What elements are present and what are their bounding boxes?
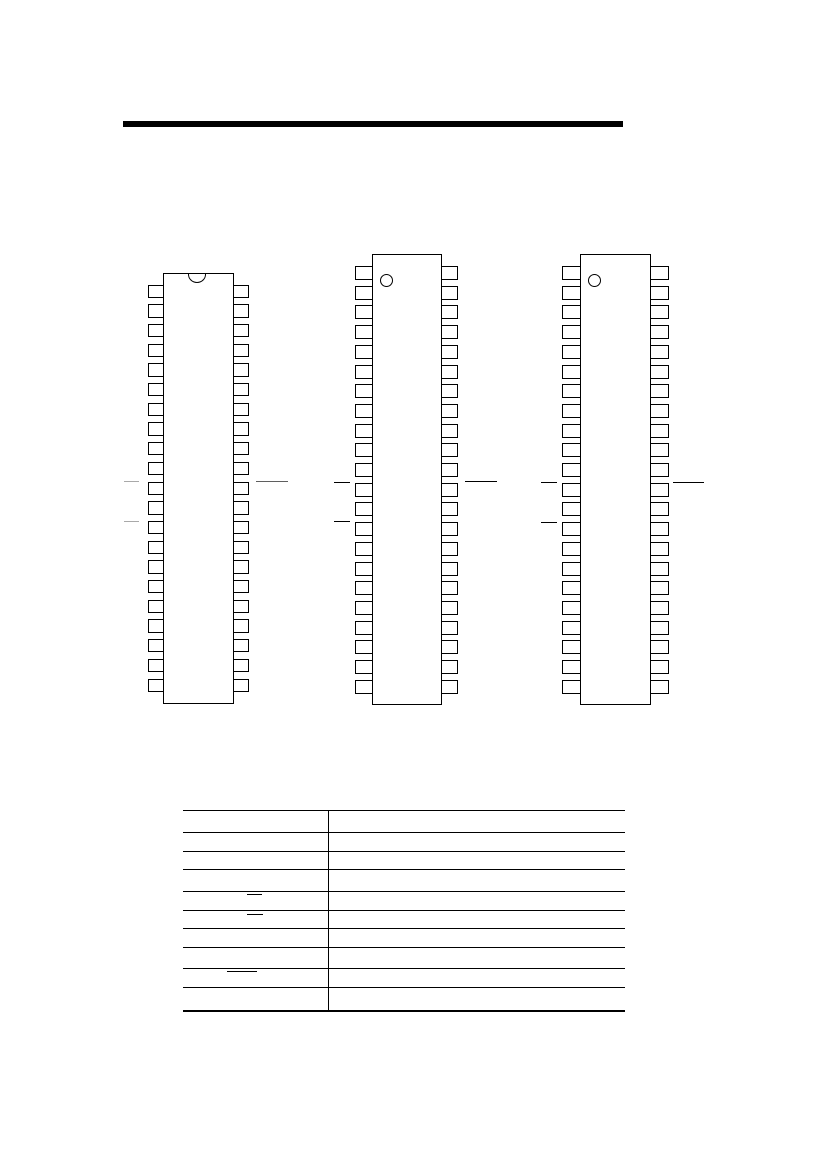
- pin: [650, 286, 669, 300]
- pin: [650, 424, 669, 438]
- pin: [355, 463, 373, 477]
- table-row-line: [183, 832, 625, 833]
- pin: [562, 660, 581, 674]
- pin: [562, 365, 581, 379]
- table-row-line: [183, 928, 625, 929]
- pin: [355, 266, 373, 280]
- pin: [355, 601, 373, 615]
- pin: [440, 365, 458, 379]
- pin: [440, 640, 458, 654]
- pin: [650, 680, 669, 694]
- pin: [355, 562, 373, 576]
- pin: [440, 680, 458, 694]
- pin: [440, 266, 458, 280]
- pin: [440, 325, 458, 339]
- pin: [233, 383, 250, 396]
- pin: [233, 659, 250, 672]
- pin: [233, 600, 250, 613]
- pin-label-tick: [334, 521, 350, 522]
- pin: [355, 542, 373, 556]
- pin: [355, 365, 373, 379]
- pin-callout-line: [465, 481, 497, 482]
- pin: [562, 443, 581, 457]
- signal-overline: [247, 894, 262, 895]
- pin: [355, 345, 373, 359]
- pin: [355, 621, 373, 635]
- pin: [233, 462, 250, 475]
- pin: [562, 424, 581, 438]
- pin: [562, 562, 581, 576]
- pin: [650, 542, 669, 556]
- pin-label-tick: [541, 522, 557, 523]
- pin: [440, 542, 458, 556]
- pin: [650, 483, 669, 497]
- table-row-line: [183, 810, 625, 811]
- pin: [650, 621, 669, 635]
- pin: [355, 286, 373, 300]
- pin: [562, 502, 581, 516]
- pin: [440, 305, 458, 319]
- pin: [562, 522, 581, 536]
- pin: [233, 639, 250, 652]
- pin: [562, 404, 581, 418]
- pin-label-tick: [124, 481, 139, 482]
- table-column-divider: [328, 810, 329, 1012]
- table-bottom-rule: [183, 1010, 625, 1012]
- pin: [562, 640, 581, 654]
- pin-label-tick: [124, 521, 139, 522]
- pin: [233, 363, 250, 376]
- pin: [440, 424, 458, 438]
- section-heading-rule: [123, 121, 623, 127]
- table-row-line: [183, 987, 625, 988]
- pin: [562, 345, 581, 359]
- pin: [440, 463, 458, 477]
- pin: [233, 501, 250, 514]
- pin-callout-line: [256, 481, 288, 482]
- pin: [562, 601, 581, 615]
- table-row-line: [183, 869, 625, 870]
- pin: [355, 443, 373, 457]
- pin: [233, 521, 250, 534]
- pin: [440, 404, 458, 418]
- pin: [650, 384, 669, 398]
- pin: [233, 560, 250, 573]
- pin: [650, 502, 669, 516]
- pin: [355, 680, 373, 694]
- pin: [233, 403, 250, 416]
- pin: [355, 581, 373, 595]
- pin: [562, 325, 581, 339]
- pin: [562, 463, 581, 477]
- pin: [440, 562, 458, 576]
- ic-body: [163, 273, 234, 704]
- pin: [355, 660, 373, 674]
- pin: [650, 660, 669, 674]
- pin: [440, 502, 458, 516]
- pin: [233, 344, 250, 357]
- pin: [650, 581, 669, 595]
- pin: [355, 522, 373, 536]
- pin: [233, 442, 250, 455]
- pin: [233, 679, 250, 692]
- pin: [650, 325, 669, 339]
- pin: [650, 463, 669, 477]
- pin: [440, 443, 458, 457]
- pin: [440, 660, 458, 674]
- pin-label-tick: [541, 482, 557, 483]
- pin: [650, 345, 669, 359]
- pin: [650, 522, 669, 536]
- pin: [650, 443, 669, 457]
- pin: [355, 483, 373, 497]
- pin: [562, 266, 581, 280]
- pin: [355, 305, 373, 319]
- pin: [355, 424, 373, 438]
- pin: [355, 640, 373, 654]
- pin: [562, 384, 581, 398]
- pin: [562, 483, 581, 497]
- pin: [650, 365, 669, 379]
- pin: [355, 384, 373, 398]
- pin: [233, 541, 250, 554]
- ic-body: [372, 254, 442, 705]
- pin: [233, 422, 250, 435]
- pin: [233, 304, 250, 317]
- table-row-line: [183, 851, 625, 852]
- signal-overline: [227, 971, 257, 972]
- pin: [440, 286, 458, 300]
- pin: [355, 502, 373, 516]
- pin: [650, 266, 669, 280]
- table-row-line: [183, 910, 625, 911]
- table-row-line: [183, 947, 625, 948]
- document-page: [0, 0, 826, 1169]
- pin: [440, 384, 458, 398]
- pin: [650, 562, 669, 576]
- table-row-line: [183, 891, 625, 892]
- pin: [440, 581, 458, 595]
- pin: [355, 325, 373, 339]
- pin-label-tick: [334, 482, 350, 483]
- pin: [562, 542, 581, 556]
- signal-overline: [247, 914, 263, 915]
- table-row-line: [183, 968, 625, 969]
- pin-callout-line: [673, 482, 704, 483]
- pin: [233, 324, 250, 337]
- pin: [440, 522, 458, 536]
- pin: [233, 619, 250, 632]
- pin: [233, 580, 250, 593]
- pin: [562, 621, 581, 635]
- pin: [650, 404, 669, 418]
- pin: [650, 305, 669, 319]
- pin: [440, 483, 458, 497]
- pin: [562, 680, 581, 694]
- ic-body: [580, 254, 651, 706]
- pin: [650, 640, 669, 654]
- pin: [562, 581, 581, 595]
- pin: [650, 601, 669, 615]
- pin: [562, 286, 581, 300]
- pin: [562, 305, 581, 319]
- pin: [233, 285, 250, 298]
- pin: [440, 621, 458, 635]
- pin: [440, 345, 458, 359]
- pin: [440, 601, 458, 615]
- pin: [355, 404, 373, 418]
- pin: [233, 482, 250, 495]
